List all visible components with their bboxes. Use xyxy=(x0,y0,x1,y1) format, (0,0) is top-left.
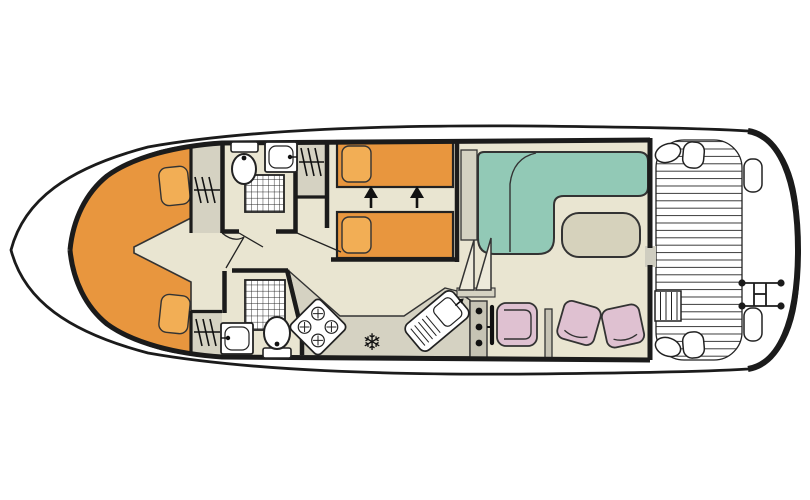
toilet-icon xyxy=(263,317,291,358)
instrument-dot xyxy=(476,308,483,315)
pillow xyxy=(158,166,191,207)
deck-cushion-icon xyxy=(682,141,705,169)
pillow xyxy=(342,146,371,182)
fridge-snowflake-icon: ❄ xyxy=(362,330,381,356)
stern-locker-icon xyxy=(744,159,762,192)
deck-steps-icon xyxy=(655,291,681,321)
wardrobe-top-left xyxy=(191,144,222,233)
helm-seat xyxy=(497,303,537,346)
instrument-dot xyxy=(476,324,483,331)
saloon-table xyxy=(562,213,640,257)
toilet-icon xyxy=(231,142,258,184)
pillow xyxy=(342,217,371,253)
boat-floorplan: ❄ xyxy=(0,0,810,500)
pillow xyxy=(158,294,191,335)
instrument-dot xyxy=(476,340,483,347)
washbasin-icon xyxy=(265,142,297,172)
aft-door-threshold xyxy=(645,246,656,267)
stern-locker-icon xyxy=(744,308,762,341)
dining-chair xyxy=(600,303,645,349)
deck-cushion-icon xyxy=(682,331,705,359)
saloon-sideboard xyxy=(461,150,477,240)
washbasin-icon xyxy=(221,323,253,354)
saloon-post xyxy=(545,309,552,360)
boat-floorplan-canvas: ❄ xyxy=(0,0,810,500)
deck-planks xyxy=(656,140,742,360)
